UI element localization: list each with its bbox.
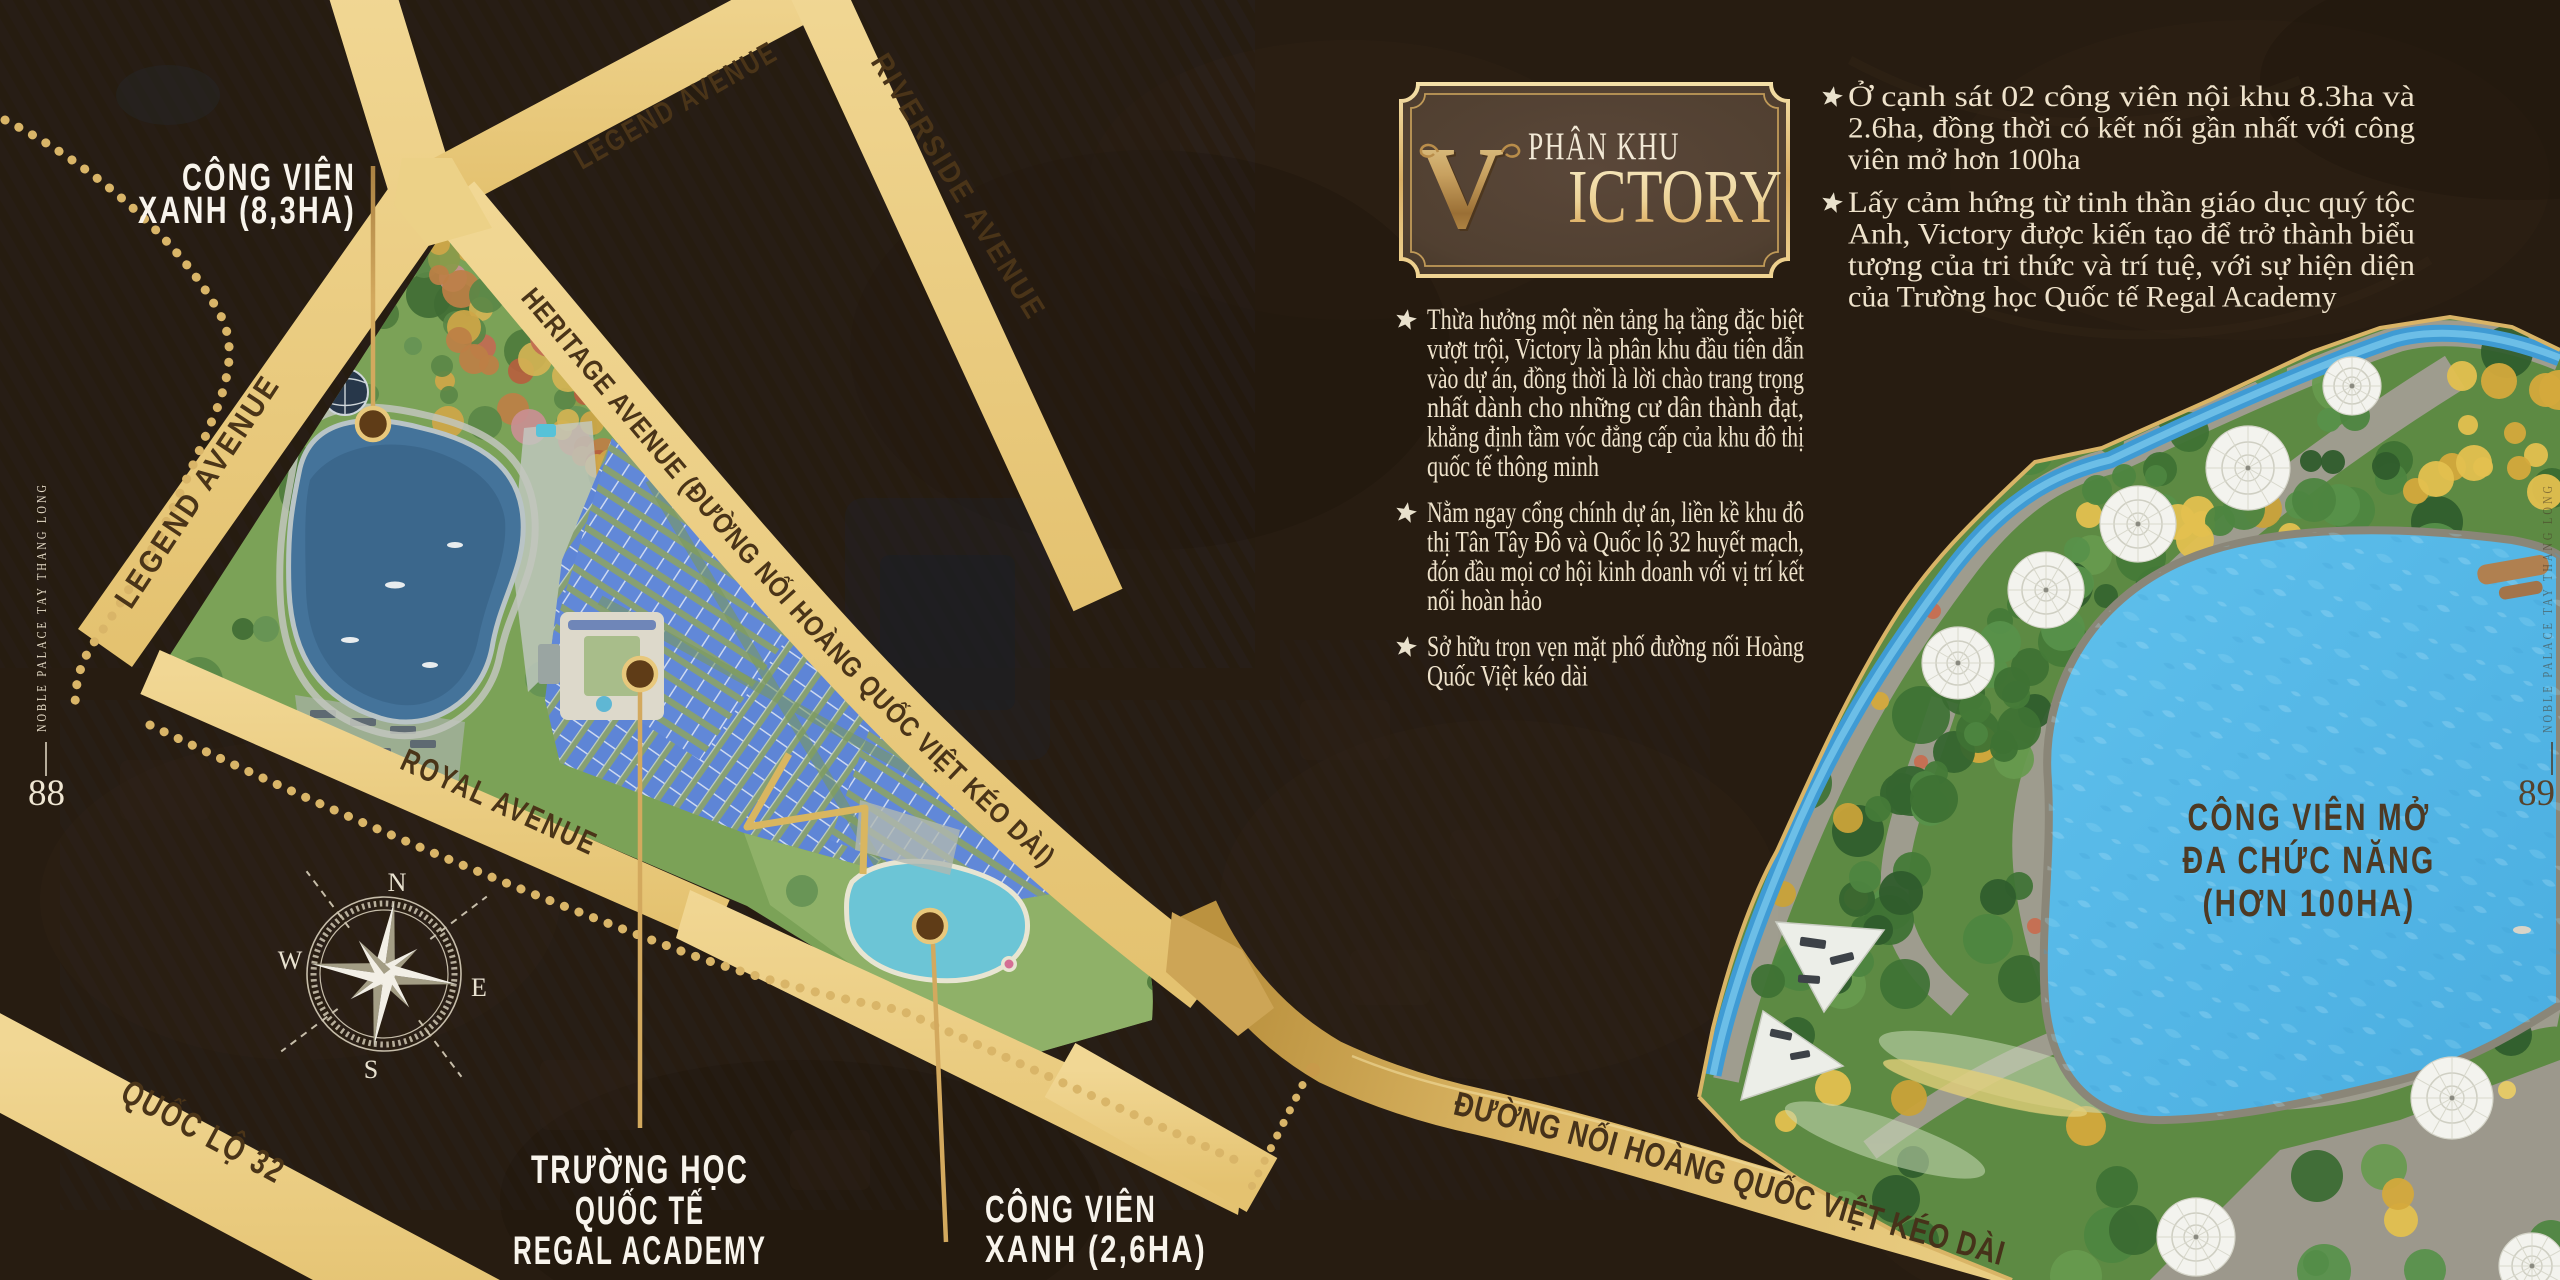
svg-text:ICTORY: ICTORY — [1568, 155, 1782, 239]
svg-text:(HƠN 100HA): (HƠN 100HA) — [2203, 883, 2416, 925]
svg-text:Anh, Victory được kiến tạo để: Anh, Victory được kiến tạo để trở thành … — [1848, 218, 2415, 251]
svg-text:vào dự án, đồng thời là lời ch: vào dự án, đồng thời là lời chào trang t… — [1427, 362, 1804, 395]
svg-text:đón đầu mọi cơ hội kinh doanh: đón đầu mọi cơ hội kinh doanh với vị trí… — [1427, 555, 1804, 588]
svg-text:Nằm ngay cổng chính dự án, liề: Nằm ngay cổng chính dự án, liền kề khu đ… — [1427, 496, 1804, 529]
svg-text:S: S — [364, 1055, 378, 1084]
svg-text:W: W — [278, 946, 303, 975]
svg-text:NOBLE PALACE TAY THANG LONG: NOBLE PALACE TAY THANG LONG — [35, 482, 50, 732]
svg-text:vượt trội, Victory là phân khu: vượt trội, Victory là phân khu đầu tiên … — [1427, 332, 1804, 365]
svg-text:Ở cạnh sát 02 công viên nội kh: Ở cạnh sát 02 công viên nội khu 8.3ha và — [1848, 80, 2415, 113]
svg-text:Sở hữu trọn vẹn mặt phố đường: Sở hữu trọn vẹn mặt phố đường nối Hoàng — [1427, 630, 1804, 663]
svg-text:quốc tế thông minh: quốc tế thông minh — [1427, 450, 1599, 483]
svg-text:tượng của tri thức và trí tuệ,: tượng của tri thức và trí tuệ, với sự hi… — [1848, 249, 2415, 282]
svg-text:Lấy cảm hứng từ tinh thần giáo: Lấy cảm hứng từ tinh thần giáo dục quý t… — [1848, 186, 2415, 219]
svg-text:viên mở hơn 100ha: viên mở hơn 100ha — [1848, 143, 2081, 176]
svg-text:nối hoàn hảo: nối hoàn hảo — [1427, 584, 1542, 617]
svg-text:XANH (8,3HA): XANH (8,3HA) — [138, 190, 356, 232]
svg-text:XANH (2,6HA): XANH (2,6HA) — [985, 1229, 1207, 1271]
svg-text:V: V — [1419, 122, 1504, 253]
svg-text:nhất dành cho những cư dân thà: nhất dành cho những cư dân thành đạt, — [1427, 391, 1804, 424]
svg-text:khẳng định tầm vóc đẳng cấp củ: khẳng định tầm vóc đẳng cấp của khu đô t… — [1427, 421, 1804, 454]
svg-text:89: 89 — [2518, 773, 2555, 814]
svg-text:88: 88 — [28, 773, 65, 814]
svg-text:thị Tân Tây Đô và Quốc lộ 32 h: thị Tân Tây Đô và Quốc lộ 32 huyết mạch, — [1427, 525, 1804, 558]
svg-text:của Trường học Quốc tế Regal A: của Trường học Quốc tế Regal Academy — [1848, 281, 2337, 314]
svg-text:CÔNG VIÊN: CÔNG VIÊN — [985, 1186, 1157, 1231]
svg-text:N: N — [388, 868, 407, 897]
svg-text:2.6ha, đồng thời có kết nối gầ: 2.6ha, đồng thời có kết nối gần nhất với… — [1848, 112, 2415, 145]
svg-text:CÔNG VIÊN MỞ: CÔNG VIÊN MỞ — [2188, 794, 2431, 839]
svg-text:QUỐC TẾ: QUỐC TẾ — [575, 1187, 705, 1233]
svg-text:ĐA CHỨC NĂNG: ĐA CHỨC NĂNG — [2183, 838, 2436, 882]
svg-text:Quốc Việt kéo dài: Quốc Việt kéo dài — [1427, 659, 1588, 692]
svg-text:TRƯỜNG HỌC: TRƯỜNG HỌC — [531, 1146, 749, 1192]
svg-text:E: E — [471, 973, 487, 1002]
svg-text:Thừa hưởng một nền tảng hạ tần: Thừa hưởng một nền tảng hạ tầng đặc biệt — [1427, 303, 1804, 336]
svg-text:NOBLE PALACE TAY THANG LONG: NOBLE PALACE TAY THANG LONG — [2541, 483, 2556, 733]
svg-text:REGAL ACADEMY: REGAL ACADEMY — [513, 1229, 767, 1273]
